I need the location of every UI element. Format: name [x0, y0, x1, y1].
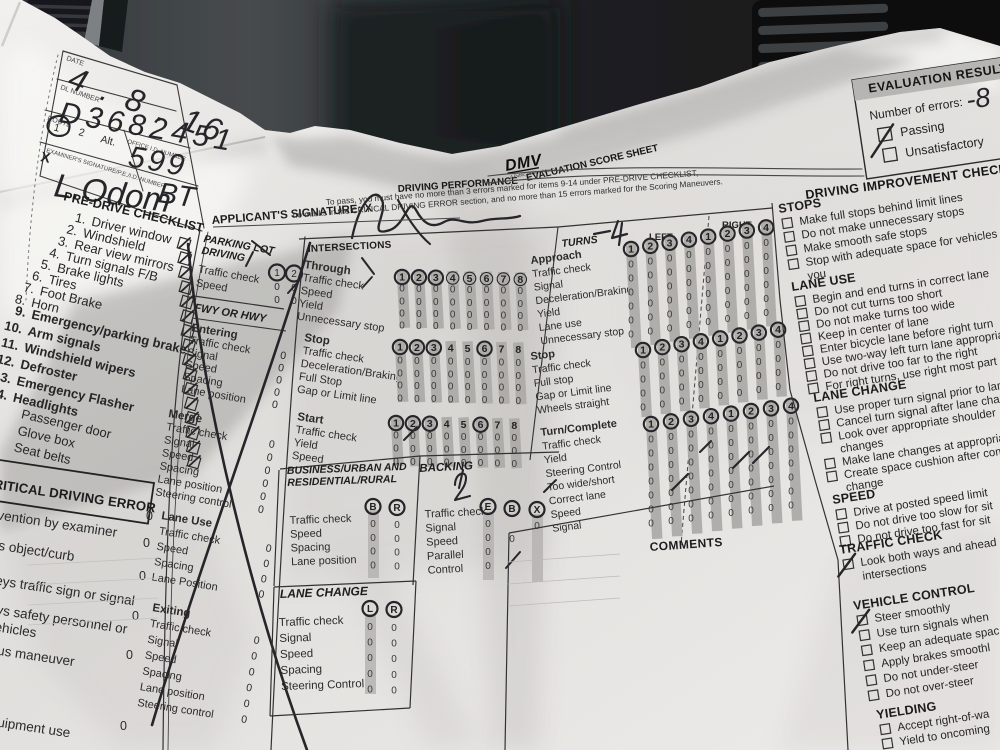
svg-text:0: 0 — [705, 275, 711, 286]
svg-text:0: 0 — [450, 322, 456, 333]
svg-text:0: 0 — [448, 395, 454, 406]
svg-text:0: 0 — [648, 298, 654, 309]
svg-text:0: 0 — [397, 369, 403, 380]
svg-text:0: 0 — [648, 449, 654, 460]
svg-text:1: 1 — [397, 342, 403, 354]
svg-text:Speed: Speed — [290, 528, 322, 541]
svg-text:0: 0 — [501, 299, 507, 310]
svg-text:0: 0 — [708, 469, 714, 480]
svg-text:0: 0 — [495, 433, 501, 444]
svg-text:3: 3 — [688, 413, 694, 425]
svg-text:0: 0 — [737, 374, 743, 385]
svg-text:0: 0 — [516, 371, 522, 382]
svg-text:Traffic check: Traffic check — [289, 513, 352, 527]
svg-text:0: 0 — [744, 241, 750, 252]
svg-text:7: 7 — [500, 274, 506, 286]
svg-text:0: 0 — [509, 534, 515, 545]
svg-text:6: 6 — [484, 273, 490, 285]
svg-text:0: 0 — [518, 311, 524, 322]
svg-text:0: 0 — [725, 300, 731, 311]
svg-text:Control: Control — [427, 563, 463, 577]
svg-text:0: 0 — [698, 380, 704, 391]
svg-text:-8: -8 — [964, 82, 992, 115]
svg-text:0: 0 — [660, 400, 666, 411]
svg-text:0: 0 — [433, 309, 439, 320]
svg-text:0: 0 — [628, 274, 634, 285]
svg-text:2: 2 — [416, 272, 422, 284]
svg-text:0: 0 — [660, 358, 666, 369]
svg-text:0: 0 — [775, 368, 781, 379]
svg-text:0: 0 — [775, 340, 781, 351]
svg-text:6: 6 — [482, 343, 488, 355]
svg-text:0: 0 — [367, 669, 373, 680]
svg-text:3: 3 — [427, 418, 433, 430]
svg-text:0: 0 — [763, 308, 769, 319]
svg-text:0: 0 — [788, 416, 794, 427]
svg-text:2: 2 — [647, 240, 653, 252]
svg-text:0: 0 — [482, 357, 488, 368]
svg-text:0: 0 — [648, 312, 654, 323]
svg-text:0: 0 — [416, 309, 422, 320]
svg-text:0: 0 — [370, 519, 376, 530]
svg-text:4: 4 — [450, 273, 456, 285]
svg-text:8: 8 — [515, 344, 521, 356]
svg-text:0: 0 — [397, 381, 403, 392]
svg-text:0: 0 — [431, 356, 437, 367]
svg-text:0: 0 — [482, 382, 488, 393]
svg-text:0: 0 — [728, 438, 734, 449]
svg-text:0: 0 — [763, 280, 769, 291]
svg-text:0: 0 — [427, 431, 433, 442]
svg-text:0: 0 — [433, 284, 439, 295]
svg-text:0: 0 — [648, 477, 654, 488]
svg-text:0: 0 — [120, 719, 127, 733]
svg-text:0: 0 — [501, 286, 507, 297]
svg-text:0: 0 — [648, 256, 654, 267]
svg-text:0: 0 — [397, 394, 403, 405]
svg-text:0: 0 — [768, 489, 774, 500]
svg-text:0: 0 — [416, 284, 422, 295]
svg-text:0: 0 — [679, 383, 685, 394]
svg-text:0: 0 — [768, 461, 774, 472]
svg-text:0: 0 — [708, 427, 714, 438]
svg-text:0: 0 — [143, 536, 150, 550]
svg-text:Speed: Speed — [280, 648, 314, 661]
svg-text:0: 0 — [518, 286, 524, 297]
svg-text:0: 0 — [478, 458, 484, 469]
svg-text:0: 0 — [499, 383, 505, 394]
svg-text:0: 0 — [444, 445, 450, 456]
svg-text:0: 0 — [367, 653, 373, 664]
svg-text:0: 0 — [756, 343, 762, 354]
svg-text:0: 0 — [744, 311, 750, 322]
svg-text:0: 0 — [725, 244, 731, 255]
svg-text:0: 0 — [668, 432, 674, 443]
svg-text:0: 0 — [679, 397, 685, 408]
svg-text:0: 0 — [788, 458, 794, 469]
svg-text:0: 0 — [628, 288, 634, 299]
svg-text:0: 0 — [391, 685, 397, 696]
svg-text:0: 0 — [717, 391, 723, 402]
svg-text:0: 0 — [768, 419, 774, 430]
svg-text:0: 0 — [768, 433, 774, 444]
svg-text:0: 0 — [717, 377, 723, 388]
svg-text:4: 4 — [686, 234, 692, 246]
svg-text:2: 2 — [291, 269, 297, 280]
svg-text:0: 0 — [648, 519, 654, 530]
svg-text:0: 0 — [737, 360, 743, 371]
svg-text:0: 0 — [399, 297, 405, 308]
svg-text:0: 0 — [431, 369, 437, 380]
svg-text:0: 0 — [648, 326, 654, 337]
svg-text:0: 0 — [788, 430, 794, 441]
svg-text:0: 0 — [391, 654, 397, 665]
svg-text:3: 3 — [679, 339, 685, 351]
svg-text:0: 0 — [679, 369, 685, 380]
svg-text:4: 4 — [448, 343, 454, 355]
svg-text:0: 0 — [391, 623, 397, 634]
svg-text:0: 0 — [708, 483, 714, 494]
svg-text:0: 0 — [756, 357, 762, 368]
svg-text:0: 0 — [788, 486, 794, 497]
svg-text:0: 0 — [708, 511, 714, 522]
svg-text:0: 0 — [485, 547, 491, 558]
svg-text:7: 7 — [494, 420, 500, 432]
svg-text:0: 0 — [499, 371, 505, 382]
svg-text:0: 0 — [484, 322, 490, 333]
svg-text:0: 0 — [705, 303, 711, 314]
svg-text:2: 2 — [748, 406, 754, 418]
svg-text:0: 0 — [484, 285, 490, 296]
svg-text:0: 0 — [668, 516, 674, 527]
svg-text:0: 0 — [414, 369, 420, 380]
svg-text:8: 8 — [517, 274, 523, 286]
svg-text:0: 0 — [660, 372, 666, 383]
svg-text:B: B — [369, 502, 376, 513]
svg-text:0: 0 — [788, 500, 794, 511]
svg-text:0: 0 — [763, 238, 769, 249]
svg-text:0: 0 — [756, 385, 762, 396]
svg-text:0: 0 — [499, 358, 505, 369]
svg-text:0: 0 — [648, 491, 654, 502]
svg-text:0: 0 — [698, 366, 704, 377]
svg-text:0: 0 — [512, 433, 518, 444]
svg-text:0: 0 — [461, 432, 467, 443]
svg-text:0: 0 — [485, 519, 491, 530]
svg-text:0: 0 — [705, 247, 711, 258]
svg-text:L: L — [367, 604, 373, 615]
svg-text:0: 0 — [146, 509, 153, 523]
svg-text:0: 0 — [367, 638, 373, 649]
svg-text:0: 0 — [737, 388, 743, 399]
svg-text:0: 0 — [450, 310, 456, 321]
svg-text:0: 0 — [465, 370, 471, 381]
svg-text:0: 0 — [763, 294, 769, 305]
svg-text:Signal: Signal — [425, 521, 456, 535]
svg-text:0: 0 — [482, 370, 488, 381]
svg-text:3: 3 — [433, 272, 439, 284]
svg-text:0: 0 — [640, 361, 646, 372]
svg-text:0: 0 — [499, 396, 505, 407]
svg-text:BT: BT — [156, 177, 199, 214]
svg-text:0: 0 — [768, 447, 774, 458]
svg-text:2: 2 — [668, 416, 674, 428]
svg-text:0: 0 — [516, 383, 522, 394]
svg-text:3: 3 — [744, 225, 750, 237]
svg-text:0: 0 — [495, 459, 501, 470]
svg-text:0: 0 — [698, 352, 704, 363]
svg-text:1: 1 — [628, 244, 634, 256]
svg-text:4: 4 — [775, 324, 781, 336]
svg-text:0: 0 — [274, 295, 280, 306]
svg-text:Spacing: Spacing — [280, 664, 322, 677]
svg-text:1: 1 — [399, 272, 405, 284]
svg-text:0: 0 — [728, 424, 734, 435]
svg-text:0: 0 — [725, 272, 731, 283]
svg-text:0: 0 — [679, 355, 685, 366]
svg-text:Signal: Signal — [279, 632, 311, 645]
svg-text:R: R — [393, 503, 401, 514]
svg-text:5: 5 — [461, 419, 467, 431]
svg-text:0: 0 — [688, 485, 694, 496]
svg-text:B: B — [508, 504, 515, 515]
svg-text:0: 0 — [705, 317, 711, 328]
svg-text:0: 0 — [686, 292, 692, 303]
svg-text:0: 0 — [414, 356, 420, 367]
svg-text:1: 1 — [274, 268, 280, 279]
svg-text:0: 0 — [705, 261, 711, 272]
svg-text:4: 4 — [698, 336, 704, 348]
svg-text:4: 4 — [708, 411, 714, 423]
svg-text:0: 0 — [737, 346, 743, 357]
svg-text:0: 0 — [717, 349, 723, 360]
svg-text:0: 0 — [768, 475, 774, 486]
svg-text:0: 0 — [393, 431, 399, 442]
svg-text:0: 0 — [394, 520, 400, 531]
svg-text:0: 0 — [686, 320, 692, 331]
svg-text:0: 0 — [728, 452, 734, 463]
svg-text:0: 0 — [667, 281, 673, 292]
svg-text:0: 0 — [775, 354, 781, 365]
svg-text:0: 0 — [686, 278, 692, 289]
svg-text:0: 0 — [728, 508, 734, 519]
svg-text:0: 0 — [628, 316, 634, 327]
svg-text:0: 0 — [688, 457, 694, 468]
svg-text:0: 0 — [688, 471, 694, 482]
svg-text:0: 0 — [414, 381, 420, 392]
svg-text:0: 0 — [391, 639, 397, 650]
svg-text:0: 0 — [744, 283, 750, 294]
svg-text:0: 0 — [708, 497, 714, 508]
svg-text:0: 0 — [370, 533, 376, 544]
svg-text:0: 0 — [705, 289, 711, 300]
svg-text:0: 0 — [698, 394, 704, 405]
svg-text:0: 0 — [367, 684, 373, 695]
svg-text:0: 0 — [391, 670, 397, 681]
svg-text:0: 0 — [397, 356, 403, 367]
svg-text:0: 0 — [448, 357, 454, 368]
svg-text:0: 0 — [394, 548, 400, 559]
svg-text:0: 0 — [660, 386, 666, 397]
svg-text:0: 0 — [717, 363, 723, 374]
svg-text:0: 0 — [744, 297, 750, 308]
svg-text:0: 0 — [763, 266, 769, 277]
svg-text:0: 0 — [688, 443, 694, 454]
svg-text:Lane position: Lane position — [291, 554, 357, 568]
svg-text:0: 0 — [370, 560, 376, 571]
svg-text:5: 5 — [465, 343, 471, 355]
svg-text:0: 0 — [370, 547, 376, 558]
svg-text:0: 0 — [394, 561, 400, 572]
svg-text:0: 0 — [512, 459, 518, 470]
svg-text:0: 0 — [410, 457, 416, 468]
svg-text:0: 0 — [132, 609, 139, 623]
svg-text:0: 0 — [467, 298, 473, 309]
svg-text:1: 1 — [393, 418, 399, 430]
svg-text:0: 0 — [725, 314, 731, 325]
svg-text:0: 0 — [748, 478, 754, 489]
svg-text:0: 0 — [485, 533, 491, 544]
svg-text:0: 0 — [431, 394, 437, 405]
svg-text:0: 0 — [126, 648, 133, 662]
svg-text:0: 0 — [748, 436, 754, 447]
svg-text:0: 0 — [484, 310, 490, 321]
svg-text:0: 0 — [484, 298, 490, 309]
svg-text:0: 0 — [414, 394, 420, 405]
svg-text:0: 0 — [139, 569, 146, 583]
svg-text:Spacing: Spacing — [290, 541, 330, 554]
svg-text:4: 4 — [444, 419, 450, 431]
svg-text:0: 0 — [628, 302, 634, 313]
svg-text:0: 0 — [394, 534, 400, 545]
svg-text:0: 0 — [668, 460, 674, 471]
svg-text:0: 0 — [416, 297, 422, 308]
svg-text:0: 0 — [433, 321, 439, 332]
svg-text:1: 1 — [705, 231, 711, 243]
svg-text:3: 3 — [768, 403, 774, 415]
svg-text:R: R — [390, 605, 398, 616]
svg-text:0: 0 — [467, 285, 473, 296]
svg-text:0: 0 — [416, 321, 422, 332]
svg-text:0: 0 — [708, 455, 714, 466]
svg-text:0: 0 — [467, 310, 473, 321]
svg-text:0: 0 — [725, 258, 731, 269]
svg-text:0: 0 — [648, 463, 654, 474]
svg-text:0: 0 — [518, 299, 524, 310]
svg-text:0: 0 — [628, 260, 634, 271]
svg-text:1: 1 — [648, 419, 654, 431]
svg-text:0: 0 — [688, 429, 694, 440]
svg-text:0: 0 — [393, 444, 399, 455]
svg-text:0: 0 — [467, 322, 473, 333]
svg-text:0: 0 — [427, 444, 433, 455]
svg-text:0: 0 — [668, 474, 674, 485]
svg-text:0: 0 — [367, 622, 373, 633]
svg-text:0: 0 — [744, 269, 750, 280]
svg-text:0: 0 — [667, 295, 673, 306]
svg-text:0: 0 — [516, 396, 522, 407]
svg-text:1: 1 — [728, 408, 734, 420]
svg-text:2: 2 — [414, 342, 420, 354]
svg-text:0: 0 — [628, 330, 634, 341]
svg-text:2: 2 — [725, 228, 731, 240]
svg-text:0: 0 — [748, 422, 754, 433]
svg-text:0: 0 — [465, 395, 471, 406]
svg-text:0: 0 — [686, 264, 692, 275]
svg-text:0: 0 — [667, 309, 673, 320]
svg-text:0: 0 — [728, 480, 734, 491]
svg-text:7: 7 — [498, 344, 504, 356]
svg-text:6: 6 — [478, 419, 484, 431]
svg-text:0: 0 — [399, 309, 405, 320]
svg-text:0: 0 — [410, 444, 416, 455]
svg-text:0: 0 — [748, 492, 754, 503]
svg-text:0: 0 — [431, 381, 437, 392]
svg-text:X: X — [534, 505, 541, 516]
svg-text:0: 0 — [450, 298, 456, 309]
svg-text:0: 0 — [640, 389, 646, 400]
svg-text:0: 0 — [465, 357, 471, 368]
svg-text:3: 3 — [756, 327, 762, 339]
svg-text:0: 0 — [399, 321, 405, 332]
svg-text:0: 0 — [686, 306, 692, 317]
svg-text:1: 1 — [717, 333, 723, 345]
svg-text:0: 0 — [448, 382, 454, 393]
svg-text:0: 0 — [640, 375, 646, 386]
svg-text:0: 0 — [448, 370, 454, 381]
svg-text:Parallel: Parallel — [427, 549, 464, 563]
svg-text:0: 0 — [788, 444, 794, 455]
svg-text:0: 0 — [756, 371, 762, 382]
svg-text:0: 0 — [744, 255, 750, 266]
svg-text:2: 2 — [737, 330, 743, 342]
svg-text:0: 0 — [501, 323, 507, 334]
svg-text:0: 0 — [748, 506, 754, 517]
svg-text:0: 0 — [640, 403, 646, 414]
svg-text:0: 0 — [501, 311, 507, 322]
svg-text:0: 0 — [725, 286, 731, 297]
svg-text:3: 3 — [431, 342, 437, 354]
svg-text:0: 0 — [399, 284, 405, 295]
svg-text:1: 1 — [640, 345, 646, 357]
svg-text:0: 0 — [768, 503, 774, 514]
svg-text:0: 0 — [688, 513, 694, 524]
svg-text:Speed: Speed — [426, 535, 458, 549]
svg-text:0: 0 — [728, 494, 734, 505]
svg-text:5: 5 — [467, 273, 473, 285]
svg-text:0: 0 — [512, 446, 518, 457]
svg-text:0: 0 — [775, 382, 781, 393]
svg-text:0: 0 — [444, 432, 450, 443]
svg-text:0: 0 — [450, 285, 456, 296]
svg-text:0: 0 — [748, 464, 754, 475]
svg-text:0: 0 — [667, 267, 673, 278]
svg-text:0: 0 — [485, 561, 491, 572]
svg-text:0: 0 — [667, 253, 673, 264]
svg-text:0: 0 — [763, 252, 769, 263]
svg-text:0: 0 — [668, 446, 674, 457]
svg-text:0: 0 — [648, 270, 654, 281]
svg-text:0: 0 — [686, 250, 692, 261]
svg-text:0: 0 — [648, 284, 654, 295]
svg-text:3: 3 — [667, 237, 673, 249]
svg-text:8: 8 — [511, 420, 517, 432]
svg-text:0: 0 — [648, 505, 654, 516]
svg-text:2: 2 — [659, 342, 665, 354]
svg-text:0: 0 — [274, 282, 280, 293]
svg-text:0: 0 — [478, 432, 484, 443]
svg-text:0: 0 — [465, 382, 471, 393]
